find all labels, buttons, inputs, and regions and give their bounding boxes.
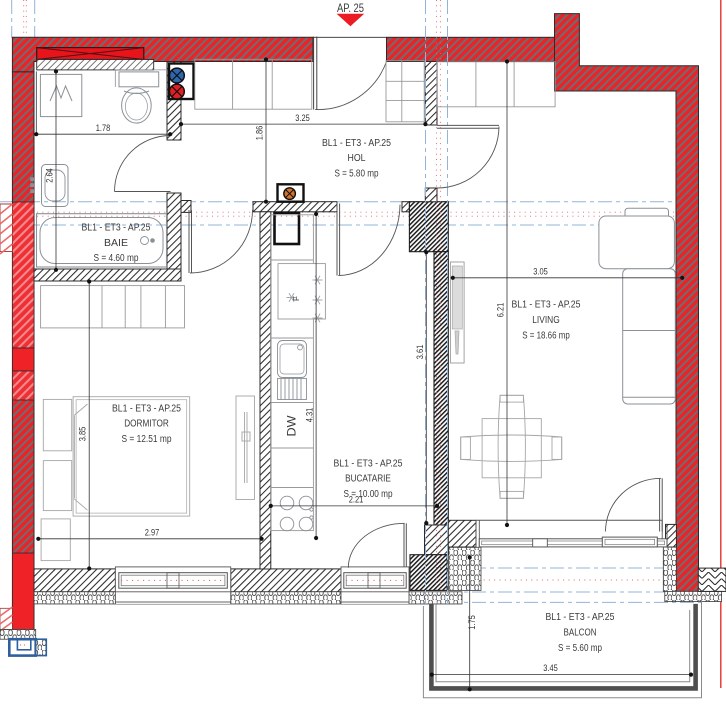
svg-text:1.78: 1.78 — [96, 123, 111, 134]
svg-text:BL1 - ET3 - AP.25: BL1 - ET3 - AP.25 — [112, 403, 181, 414]
svg-text:F: F — [292, 296, 301, 301]
svg-text:S = 12.51 mp: S = 12.51 mp — [122, 434, 172, 445]
svg-text:3.61: 3.61 — [415, 345, 426, 360]
svg-text:3.25: 3.25 — [295, 113, 310, 124]
svg-text:S = 5.80 mp: S = 5.80 mp — [335, 169, 379, 180]
svg-text:S = 4.60 mp: S = 4.60 mp — [94, 253, 139, 264]
svg-text:BL1 - ET3 - AP.25: BL1 - ET3 - AP.25 — [512, 300, 581, 311]
svg-text:HOL: HOL — [348, 153, 366, 164]
svg-text:DW: DW — [287, 415, 299, 436]
svg-text:BL1 - ET3 - AP.25: BL1 - ET3 - AP.25 — [322, 138, 391, 149]
svg-text:3.05: 3.05 — [533, 267, 548, 278]
svg-text:DORMITOR: DORMITOR — [124, 419, 169, 430]
svg-text:4.31: 4.31 — [305, 408, 316, 423]
svg-text:1.75: 1.75 — [467, 615, 478, 630]
svg-text:S = 5.60 mp: S = 5.60 mp — [558, 643, 602, 654]
svg-text:BL1 - ET3 - AP.25: BL1 - ET3 - AP.25 — [334, 458, 403, 469]
svg-text:BUCATARIE: BUCATARIE — [345, 474, 391, 485]
svg-text:2.97: 2.97 — [145, 528, 160, 539]
svg-text:BL1 - ET3 - AP.25: BL1 - ET3 - AP.25 — [82, 222, 151, 233]
svg-text:S = 18.66 mp: S = 18.66 mp — [522, 330, 570, 341]
svg-text:6.21: 6.21 — [496, 303, 507, 318]
svg-text:3.45: 3.45 — [543, 663, 558, 674]
svg-text:AP. 25: AP. 25 — [337, 3, 364, 15]
svg-text:1.86: 1.86 — [255, 126, 266, 141]
svg-text:S = 10.00 mp: S = 10.00 mp — [344, 489, 393, 500]
svg-text:2.64: 2.64 — [45, 168, 56, 183]
svg-text:BL1 - ET3 - AP.25: BL1 - ET3 - AP.25 — [546, 612, 615, 623]
svg-text:BALCON: BALCON — [564, 628, 597, 639]
svg-text:BAIE: BAIE — [104, 238, 128, 249]
svg-text:LIVING: LIVING — [532, 315, 560, 326]
svg-text:3.85: 3.85 — [78, 427, 89, 442]
